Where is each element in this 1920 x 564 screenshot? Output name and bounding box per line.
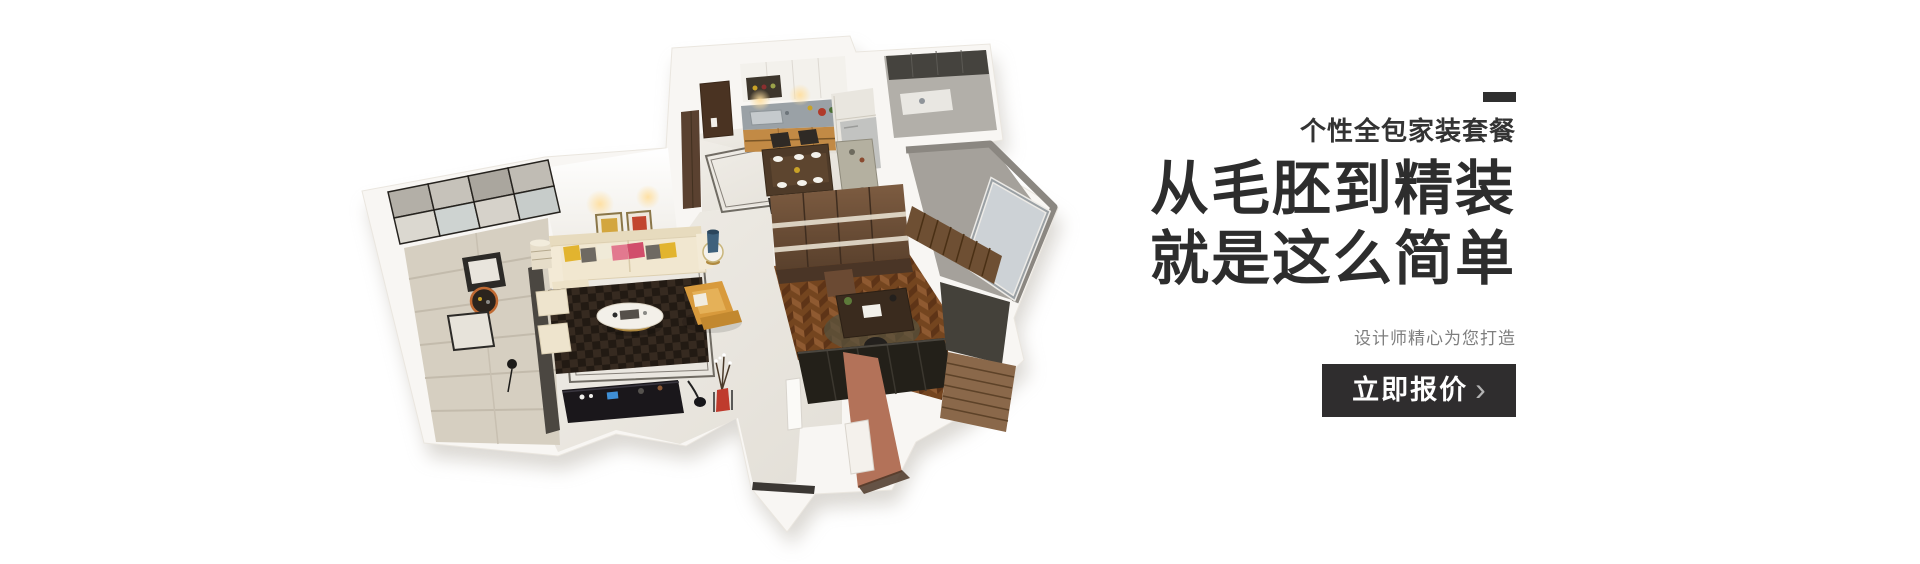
promo-text-block: 个性全包家装套餐 从毛胚到精装就是这么简单 设计师精心为您打造 立即报价 › [1150, 92, 1516, 417]
apartment-isometric-svg [280, 0, 1100, 564]
open-door-leaf [786, 378, 802, 430]
balcony-round-table [471, 288, 497, 314]
hero-banner: 个性全包家装套餐 从毛胚到精装就是这么简单 设计师精心为您打造 立即报价 › [0, 0, 1920, 564]
kitchen-spotlight-glow [789, 84, 811, 106]
chevron-right-icon: › [1475, 373, 1486, 405]
room-utility-balcony [884, 50, 997, 138]
ceiling-spotlight-glow [636, 185, 660, 209]
floorplan-render [280, 0, 1100, 564]
kitchen-door [700, 81, 733, 138]
promo-title-line2: 就是这么简单 [1150, 226, 1516, 292]
sink [750, 110, 783, 125]
lounge-seat [824, 269, 856, 297]
promo-category: 个性全包家装套餐 [1300, 118, 1516, 144]
accent-mark [1483, 92, 1516, 102]
kitchen-spotlight-glow [749, 89, 771, 111]
get-quote-button[interactable]: 立即报价 › [1322, 364, 1516, 417]
get-quote-label: 立即报价 [1352, 377, 1468, 404]
wardrobe-partition [770, 184, 913, 284]
promo-description: 设计师精心为您打造 [1354, 330, 1516, 347]
drum-floor-lamp [530, 240, 552, 271]
promo-title: 从毛胚到精装就是这么简单 [1150, 154, 1516, 294]
promo-title-line1: 从毛胚到精装 [1150, 156, 1516, 222]
lounge-chair-light [448, 312, 494, 350]
coffee-table [597, 303, 663, 336]
